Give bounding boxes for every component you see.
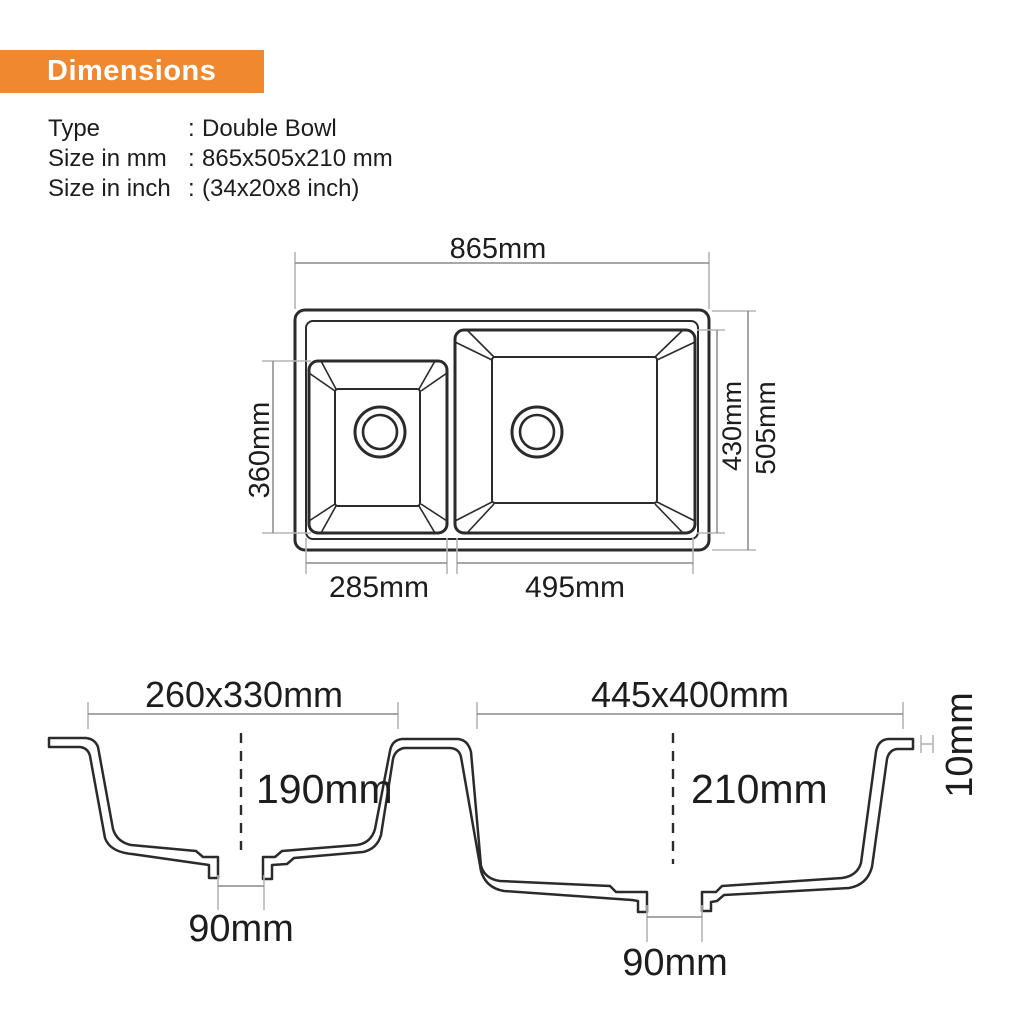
dim-right-bowl-height: 210mm — [673, 733, 828, 864]
dim-label-right-bowl-width: 495mm — [525, 571, 625, 604]
dim-label-rim-thickness: 10mm — [939, 692, 981, 798]
left-bowl-bevels — [309, 361, 447, 533]
dim-label-left-bowl-depth: 360mm — [244, 402, 276, 499]
dim-left-bowl-top: 260x330mm — [88, 674, 398, 729]
dim-left-bowl-height: 190mm — [241, 733, 393, 850]
dim-label-right-drain: 90mm — [622, 942, 728, 984]
dim-label-overall-width: 865mm — [450, 233, 547, 265]
dim-rim-thickness: 10mm — [921, 692, 981, 798]
spec-row-type: Type : Double Bowl — [48, 114, 498, 144]
dim-label-right-bowl-height: 210mm — [691, 766, 828, 812]
profile-left-wall — [49, 738, 218, 878]
dim-left-drain: 90mm — [188, 875, 294, 950]
cross-section-drawing: 260x330mm 445x400mm 190mm 210mm 90m — [20, 650, 1020, 1010]
profile-right-wall — [702, 739, 913, 911]
dim-label-left-bowl-height: 190mm — [256, 766, 393, 812]
right-bowl — [455, 330, 695, 533]
spec-label: Type — [48, 114, 188, 144]
left-bowl — [309, 361, 447, 533]
spec-value: (34x20x8 inch) — [202, 174, 498, 204]
spec-row-size-inch: Size in inch : (34x20x8 inch) — [48, 174, 498, 204]
page: Dimensions Type : Double Bowl Size in mm… — [0, 0, 1024, 1024]
dim-right-drain: 90mm — [622, 905, 728, 984]
sink-outline — [295, 310, 709, 550]
dim-left-bowl-depth: 360mm — [244, 361, 311, 533]
dim-label-left-bowl-width: 285mm — [329, 571, 429, 604]
dim-right-bowl-width: 495mm — [457, 538, 693, 604]
spec-separator: : — [188, 144, 202, 174]
dim-overall-width: 865mm — [295, 233, 709, 309]
spec-label: Size in mm — [48, 144, 188, 174]
spec-value: 865x505x210 mm — [202, 144, 498, 174]
dim-right-bowl-top: 445x400mm — [477, 674, 903, 729]
spec-row-size-mm: Size in mm : 865x505x210 mm — [48, 144, 498, 174]
spec-value: Double Bowl — [202, 114, 498, 144]
page-title: Dimensions — [0, 55, 216, 88]
dimensions-banner: Dimensions — [0, 50, 264, 93]
dim-left-bowl-width: 285mm — [306, 538, 447, 604]
spec-list: Type : Double Bowl Size in mm : 865x505x… — [48, 114, 498, 204]
dim-right-bowl-depth: 430mm — [697, 330, 747, 533]
dim-label-right-bowl-depth: 430mm — [717, 381, 747, 471]
dim-label-left-drain: 90mm — [188, 908, 294, 950]
dim-label-right-bowl-top: 445x400mm — [591, 674, 789, 715]
spec-separator: : — [188, 174, 202, 204]
spec-separator: : — [188, 114, 202, 144]
dim-label-left-bowl-top: 260x330mm — [145, 674, 343, 715]
top-view-drawing: 865mm — [230, 228, 790, 632]
dim-label-overall-depth: 505mm — [750, 381, 781, 474]
spec-label: Size in inch — [48, 174, 188, 204]
profile-divider — [263, 739, 647, 912]
